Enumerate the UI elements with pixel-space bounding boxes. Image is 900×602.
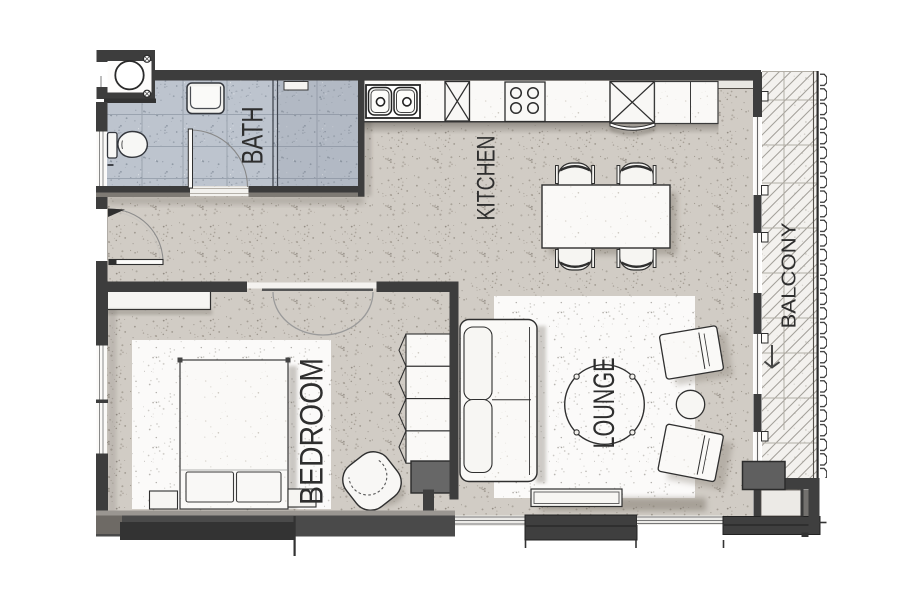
svg-text:BALCONY: BALCONY: [779, 223, 801, 329]
svg-text:KITCHEN: KITCHEN: [473, 136, 501, 221]
svg-text:LOUNGE: LOUNGE: [588, 358, 621, 449]
svg-text:BEDROOM: BEDROOM: [294, 358, 330, 505]
svg-text:BATH: BATH: [237, 107, 270, 165]
